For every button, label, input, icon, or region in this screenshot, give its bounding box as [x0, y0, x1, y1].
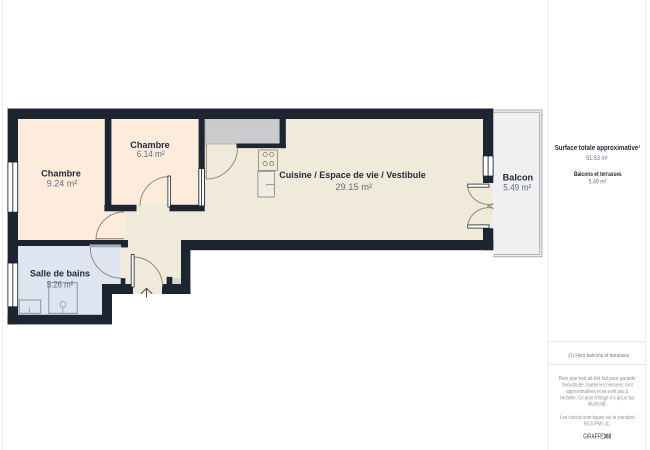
svg-text:5.26 m²: 5.26 m² — [47, 280, 74, 291]
svg-text:Balcons et terrasses: Balcons et terrasses — [574, 171, 622, 178]
svg-text:Chambre: Chambre — [41, 169, 81, 179]
svg-text:6.14 m²: 6.14 m² — [137, 149, 165, 160]
svg-text:9.24 m²: 9.24 m² — [47, 179, 77, 190]
svg-text:5.49 m²: 5.49 m² — [589, 179, 607, 186]
svg-text:(1) Hors balcons et terrasses: (1) Hors balcons et terrasses — [568, 353, 629, 359]
svg-text:Salle de bains: Salle de bains — [30, 269, 90, 279]
svg-text:Cuisine / Espace de vie / Vest: Cuisine / Espace de vie / Vestibule — [279, 170, 426, 180]
svg-text:51.53 m²: 51.53 m² — [586, 155, 608, 162]
svg-text:approximatives et ne sont pas: approximatives et ne sont pas à — [566, 389, 628, 395]
svg-text:l'exactitude, toutes les mesur: l'exactitude, toutes les mesures sont — [562, 383, 633, 389]
svg-text:GIRAFFE360: GIRAFFE360 — [583, 434, 611, 441]
svg-text:illustratif.: illustratif. — [588, 402, 607, 408]
svg-text:l'échelle. Ce plan d'étage n'a: l'échelle. Ce plan d'étage n'a qu'un but — [560, 395, 635, 401]
svg-text:Bien que tout ait été fait pou: Bien que tout ait été fait pour garantir — [559, 376, 636, 382]
svg-text:Surface totale approximative¹: Surface totale approximative¹ — [555, 145, 641, 152]
svg-text:RICS IPMS 3C.: RICS IPMS 3C. — [584, 422, 611, 428]
svg-text:Les calculs sont basés sur le: Les calculs sont basés sur le standard — [560, 415, 635, 421]
svg-text:Balcon: Balcon — [503, 172, 534, 182]
svg-text:29.15 m²: 29.15 m² — [335, 182, 372, 193]
svg-text:5.49 m²: 5.49 m² — [503, 182, 531, 193]
